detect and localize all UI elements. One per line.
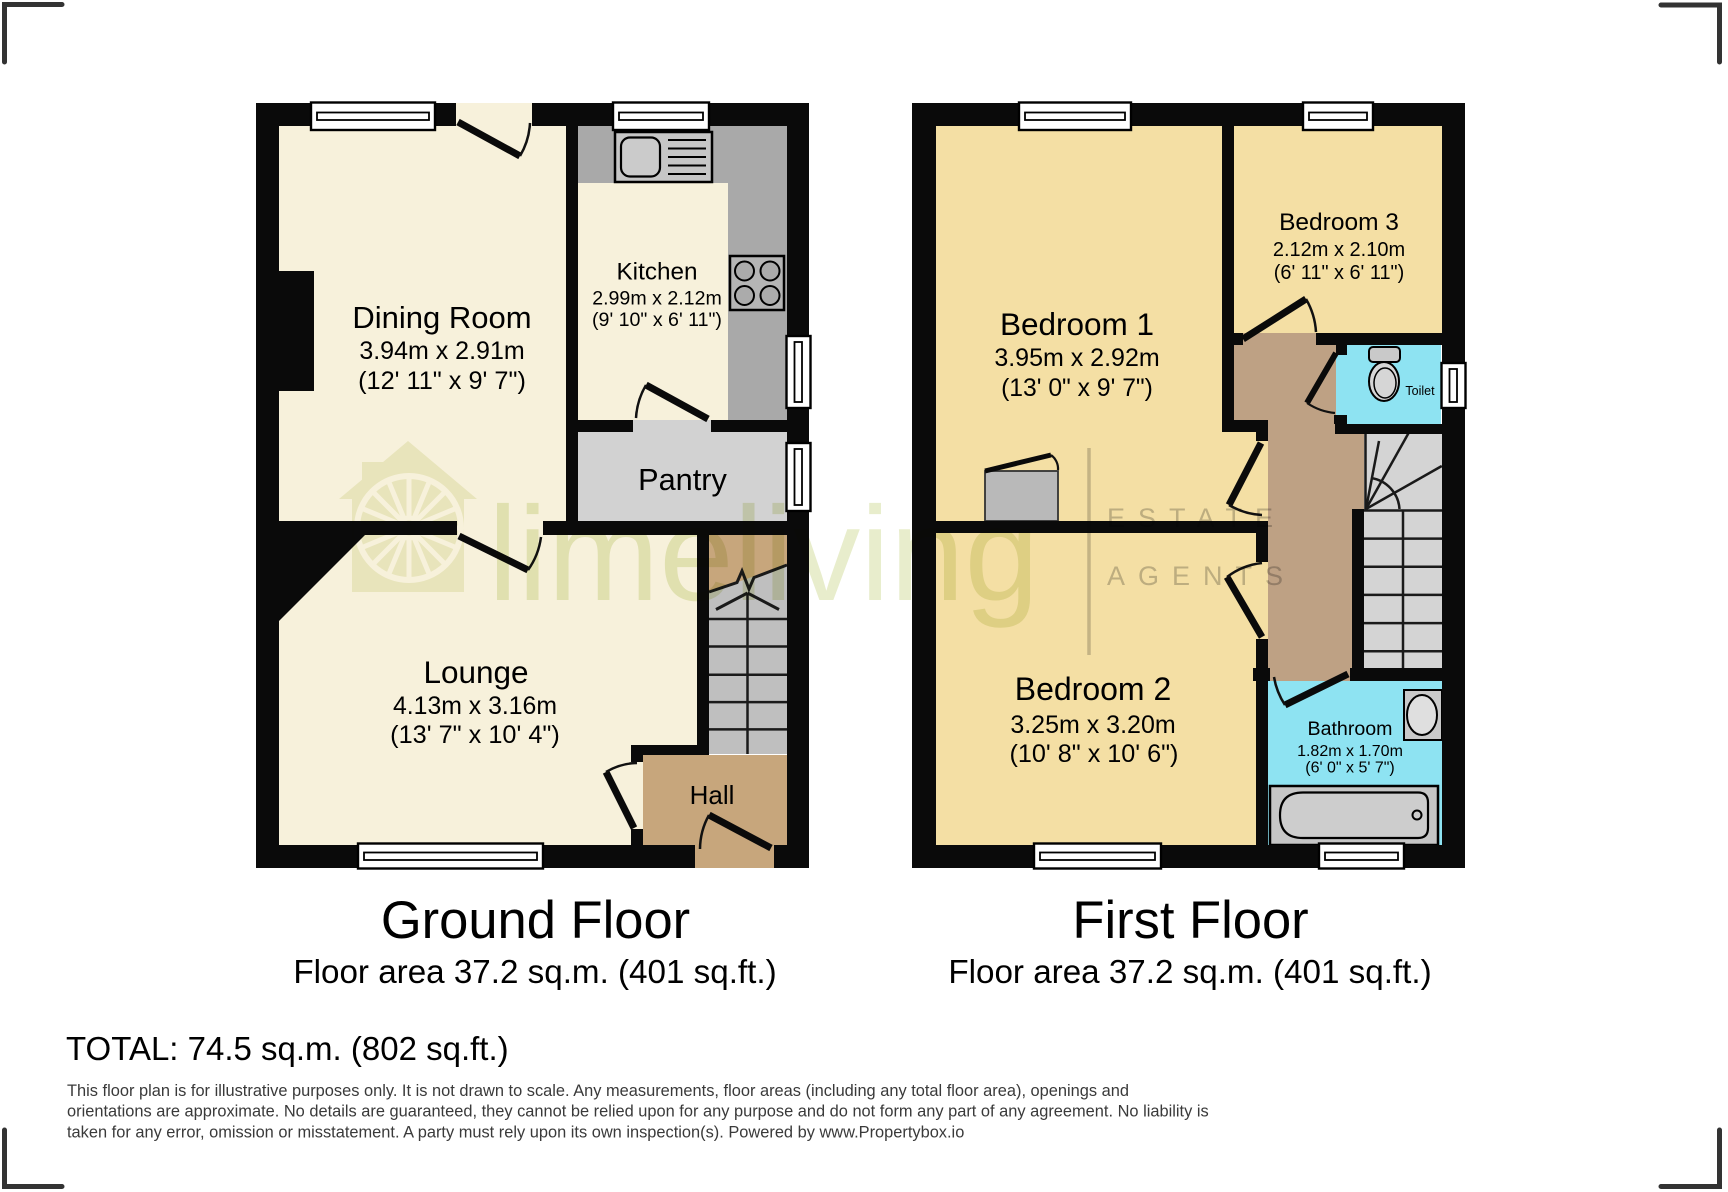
svg-text:2.12m x 2.10m: 2.12m x 2.10m <box>1273 239 1405 261</box>
svg-text:Ground Floor: Ground Floor <box>381 891 690 950</box>
svg-text:(13' 7" x 10' 4"): (13' 7" x 10' 4") <box>390 721 560 749</box>
svg-text:Bedroom 3: Bedroom 3 <box>1279 209 1399 236</box>
svg-text:3.25m x 3.20m: 3.25m x 3.20m <box>1010 711 1175 739</box>
svg-text:(9' 10" x 6' 11"): (9' 10" x 6' 11") <box>592 309 722 331</box>
svg-text:(6' 11" x 6' 11"): (6' 11" x 6' 11") <box>1274 262 1404 284</box>
svg-text:Bedroom 1: Bedroom 1 <box>1000 306 1154 342</box>
svg-text:(10' 8" x 10' 6"): (10' 8" x 10' 6") <box>1010 740 1179 768</box>
svg-text:orientations are approximate.: orientations are approximate. No details… <box>67 1103 1209 1121</box>
svg-text:Bathroom: Bathroom <box>1308 718 1393 740</box>
svg-text:AGENTS: AGENTS <box>1107 561 1296 591</box>
svg-text:Floor area 37.2 sq.m. (401 sq.: Floor area 37.2 sq.m. (401 sq.ft.) <box>948 954 1431 991</box>
svg-text:2.99m x 2.12m: 2.99m x 2.12m <box>592 288 722 310</box>
svg-text:TOTAL: 74.5 sq.m. (802 sq.ft.): TOTAL: 74.5 sq.m. (802 sq.ft.) <box>66 1030 509 1067</box>
svg-text:Hall: Hall <box>690 780 735 810</box>
svg-text:4.13m x 3.16m: 4.13m x 3.16m <box>393 693 557 720</box>
svg-text:Toilet: Toilet <box>1405 384 1435 398</box>
svg-text:3.95m x 2.92m: 3.95m x 2.92m <box>994 344 1159 372</box>
svg-text:Kitchen: Kitchen <box>616 259 697 286</box>
svg-text:3.94m x 2.91m: 3.94m x 2.91m <box>359 337 524 365</box>
svg-text:(12' 11" x 9' 7"): (12' 11" x 9' 7") <box>358 367 526 395</box>
svg-text:First Floor: First Floor <box>1072 891 1308 950</box>
svg-text:Bedroom 2: Bedroom 2 <box>1015 671 1172 707</box>
svg-text:Lounge: Lounge <box>423 654 528 690</box>
svg-text:1.82m x 1.70m: 1.82m x 1.70m <box>1297 743 1403 760</box>
svg-text:taken for any error, omission: taken for any error, omission or misstat… <box>67 1123 964 1141</box>
svg-text:(6' 0" x 5' 7"): (6' 0" x 5' 7") <box>1305 760 1395 777</box>
svg-text:This floor plan is for illustr: This floor plan is for illustrative purp… <box>67 1082 1129 1100</box>
svg-text:Dining Room: Dining Room <box>352 300 531 335</box>
svg-text:ESTATE: ESTATE <box>1107 503 1286 533</box>
svg-text:limeliving: limeliving <box>488 480 1039 629</box>
svg-text:Floor area 37.2 sq.m. (401 sq.: Floor area 37.2 sq.m. (401 sq.ft.) <box>293 954 776 991</box>
svg-text:(13' 0" x 9' 7"): (13' 0" x 9' 7") <box>1001 375 1153 402</box>
